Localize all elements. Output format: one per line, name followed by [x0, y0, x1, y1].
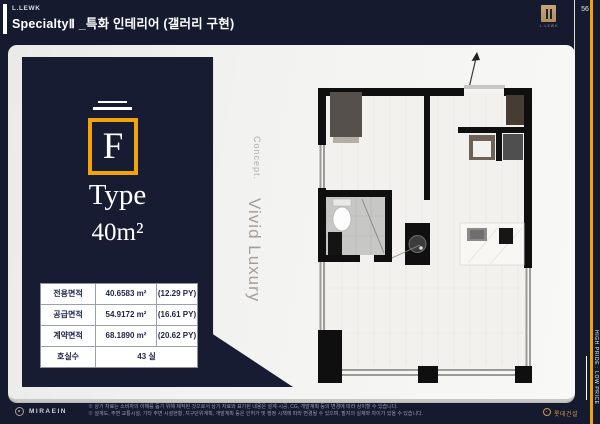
deco-line	[98, 101, 127, 103]
page-title: SpecialtyⅡ _특화 인테리어 (갤러리 구현)	[12, 13, 234, 32]
spec-label: 공급면적	[41, 305, 96, 326]
toilet-icon	[333, 207, 351, 231]
miraein-logo-icon	[15, 407, 24, 416]
spec-label: 전용면적	[41, 284, 96, 305]
unit-type-badge: F	[88, 118, 138, 175]
brand-logo-caption: L.LEWK	[536, 24, 562, 28]
deco-line	[93, 107, 132, 110]
spec-label: 계약면적	[41, 326, 96, 347]
builder-logo-icon	[543, 408, 551, 416]
spec-py: (12.29 PY)	[157, 284, 197, 305]
unit-area: 40m²	[22, 219, 213, 247]
area-spec-table: 전용면적 40.6583 m² (12.29 PY) 공급면적 54.9172 …	[40, 283, 198, 368]
toilet-tank	[333, 199, 351, 206]
footer-right-brand: 롯데건설	[554, 409, 578, 418]
concept-title: Vivid Luxury	[244, 198, 264, 302]
kitchen-island	[460, 223, 524, 265]
spec-value: 40.6583 m²	[96, 284, 157, 305]
shower-wall	[328, 232, 342, 255]
slide-page: L.LEWK SpecialtyⅡ _특화 인테리어 (갤러리 구현) L.LE…	[0, 0, 600, 424]
rail-tick-line	[586, 356, 587, 400]
refrigerator	[503, 134, 523, 160]
vanity	[405, 223, 430, 265]
bathroom	[326, 197, 385, 255]
entry-arrow-icon	[469, 52, 480, 88]
unit-type-label: Type	[22, 179, 213, 212]
basin-icon	[409, 236, 426, 253]
concept-eyebrow: Concept.	[252, 136, 262, 180]
footer-disclaimer: ※ 상기 자료는 소비자의 이해를 돕기 위해 제작된 것으로서 상기 자료와 …	[88, 404, 538, 418]
rooms-value: 43 실	[96, 347, 197, 367]
cooktop-icon	[499, 228, 513, 244]
spec-value: 54.9172 m²	[96, 305, 157, 326]
header-brand: L.LEWK	[12, 5, 41, 12]
spec-py: (20.62 PY)	[157, 326, 197, 347]
wardrobe-left	[330, 92, 362, 137]
disclaimer-line: ※ 상기 자료는 소비자의 이해를 돕기 위해 제작된 것으로서 상기 자료와 …	[88, 404, 538, 411]
disclaimer-line: ※ 설계도, 주변 교통시설, 기타 주변 시설현황, 지구단위계획, 개발계획…	[88, 411, 538, 418]
spec-py: (16.61 PY)	[157, 305, 197, 326]
unit-type-letter: F	[103, 128, 124, 165]
rooms-label: 호실수	[41, 347, 96, 367]
header-accent-bar	[3, 4, 7, 34]
floorplan-drawing	[300, 48, 550, 388]
footer-left-brand: MIRAEIN	[29, 408, 67, 415]
rail-tagline: HIGH PRIDE : LOW PRICE	[593, 330, 599, 405]
entry-door	[464, 85, 505, 89]
brand-logo-icon	[541, 5, 556, 22]
closet-right	[506, 95, 524, 125]
spec-value: 68.1890 m²	[96, 326, 157, 347]
